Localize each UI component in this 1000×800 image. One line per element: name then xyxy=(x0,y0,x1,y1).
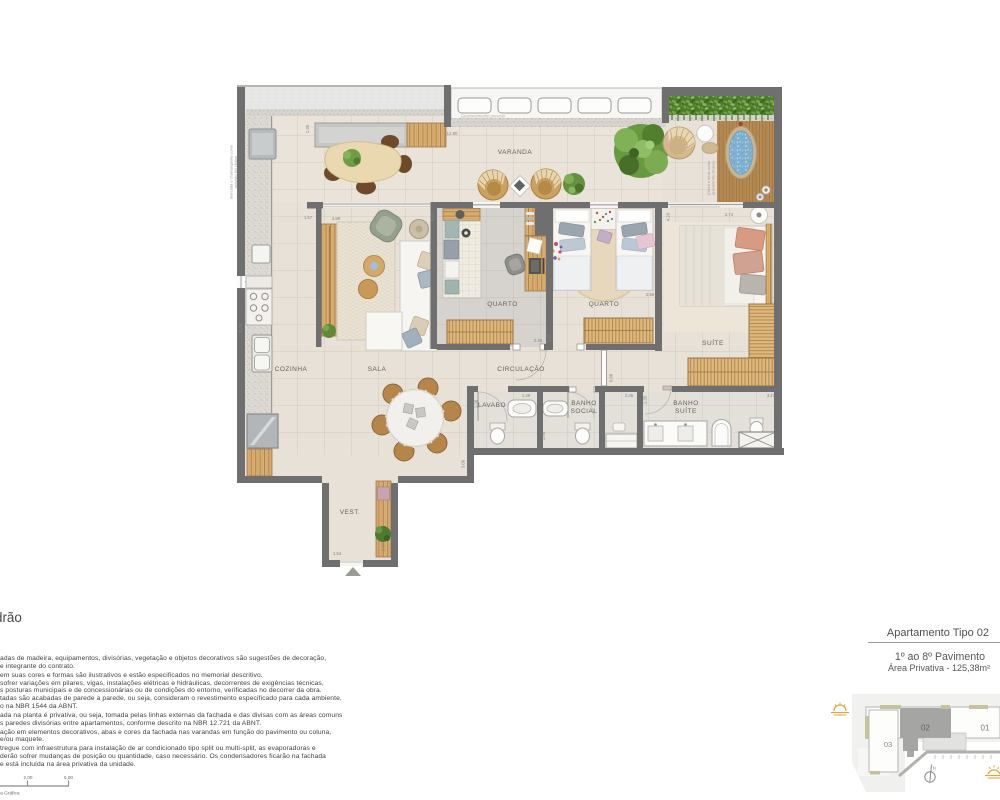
svg-text:SALA: SALA xyxy=(368,366,387,373)
svg-text:1.95: 1.95 xyxy=(305,124,310,133)
svg-text:2.74: 2.74 xyxy=(725,212,734,217)
svg-text:1.67: 1.67 xyxy=(304,215,313,220)
svg-text:4.29: 4.29 xyxy=(666,212,671,221)
svg-text:SOCIAL: SOCIAL xyxy=(571,408,598,415)
svg-text:Guarnecimento previsto: Guarnecimento previsto xyxy=(461,114,506,119)
svg-text:COZINHA: COZINHA xyxy=(275,366,308,373)
svg-text:VARANDA: VARANDA xyxy=(498,149,533,156)
svg-text:QUARTO: QUARTO xyxy=(589,301,620,308)
svg-text:2.49: 2.49 xyxy=(534,338,543,343)
svg-text:3.21: 3.21 xyxy=(767,393,776,398)
svg-text:2.59: 2.59 xyxy=(646,292,655,297)
svg-text:03: 03 xyxy=(884,740,892,749)
svg-text:2.00: 2.00 xyxy=(381,542,386,551)
svg-text:1.35: 1.35 xyxy=(643,395,648,404)
svg-text:QUARTO: QUARTO xyxy=(487,301,518,308)
svg-text:6.88: 6.88 xyxy=(609,373,614,382)
svg-text:LAVABO: LAVABO xyxy=(478,402,506,409)
svg-text:SUÍTE: SUÍTE xyxy=(675,406,697,415)
svg-text:01: 01 xyxy=(981,724,990,733)
svg-text:CIRCULAÇÃO: CIRCULAÇÃO xyxy=(497,364,545,373)
svg-text:5,00: 5,00 xyxy=(64,775,73,780)
svg-text:2,00: 2,00 xyxy=(24,775,33,780)
svg-text:cala Gráfica: cala Gráfica xyxy=(0,791,20,797)
svg-text:VEST.: VEST. xyxy=(340,509,361,516)
svg-text:N: N xyxy=(933,766,936,771)
svg-text:1.39: 1.39 xyxy=(522,393,531,398)
svg-text:2.36: 2.36 xyxy=(625,393,634,398)
svg-text:6.49: 6.49 xyxy=(430,212,435,221)
svg-text:BANHO: BANHO xyxy=(571,400,597,407)
svg-text:3.25: 3.25 xyxy=(547,333,552,342)
svg-text:2.89: 2.89 xyxy=(332,216,341,221)
svg-text:BANHO: BANHO xyxy=(673,400,699,407)
svg-text:1.36: 1.36 xyxy=(474,399,479,408)
svg-text:6.49: 6.49 xyxy=(238,323,243,332)
svg-text:12.80: 12.80 xyxy=(447,131,458,136)
svg-text:previsto My choice): previsto My choice) xyxy=(711,161,716,195)
svg-text:SUÍTE: SUÍTE xyxy=(702,338,724,347)
svg-text:3.09: 3.09 xyxy=(461,459,466,468)
svg-text:1.54: 1.54 xyxy=(333,551,342,556)
svg-text:previsto My choice: previsto My choice xyxy=(233,156,238,188)
svg-text:02: 02 xyxy=(921,724,930,733)
svg-text:1.98: 1.98 xyxy=(541,431,546,440)
